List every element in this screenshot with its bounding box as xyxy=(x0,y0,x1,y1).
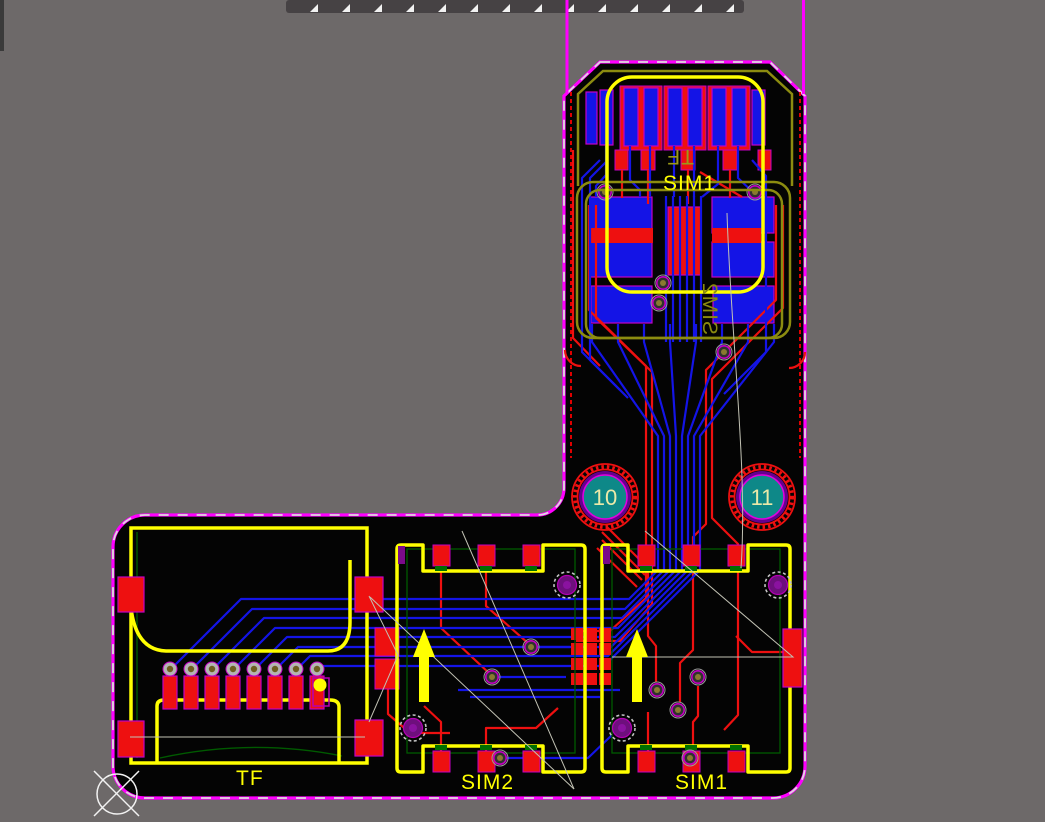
via-hole xyxy=(656,300,662,306)
sim-slot-bridge[interactable] xyxy=(712,228,761,243)
pcb-canvas[interactable]: 10 11 SIM1 TF SIM2 TF SIM2 SIM1 xyxy=(0,0,1045,822)
edge-mount-pad[interactable] xyxy=(783,629,802,687)
tf-via-hole xyxy=(314,666,320,672)
via-hole xyxy=(687,755,693,761)
screen-edge-strip xyxy=(0,0,4,51)
stitch-pad[interactable] xyxy=(571,628,583,640)
socket-paste-top xyxy=(480,566,492,571)
label-sim2[interactable]: SIM2 xyxy=(461,771,514,794)
connector-pad-bottom[interactable] xyxy=(668,88,682,146)
sim-slot-pad[interactable] xyxy=(590,197,652,233)
connector-pad-bottom[interactable] xyxy=(688,88,702,146)
socket-paste-top xyxy=(640,566,652,571)
socket-pad-top[interactable] xyxy=(433,545,450,566)
stitch-pad[interactable] xyxy=(585,673,597,685)
socket-pad-bottom[interactable] xyxy=(728,751,745,772)
tf-via-hole xyxy=(293,666,299,672)
connector-pad-tooth[interactable] xyxy=(641,150,655,170)
via-hole xyxy=(489,674,495,680)
label-tf-mirrored[interactable]: TF xyxy=(666,145,694,168)
socket-paste-bottom xyxy=(480,745,492,750)
edge-mount-pad[interactable] xyxy=(355,720,383,756)
tp-via-core xyxy=(563,581,571,589)
label-sim1-top[interactable]: SIM1 xyxy=(663,172,716,195)
sim-slot-bridge[interactable] xyxy=(590,228,653,243)
connector-pad-bottom[interactable] xyxy=(624,88,638,146)
socket-pad-top[interactable] xyxy=(478,545,495,566)
tf-pad[interactable] xyxy=(184,676,198,709)
socket-paste-top xyxy=(435,566,447,571)
stitch-pad[interactable] xyxy=(585,628,597,640)
socket-pad-top[interactable] xyxy=(523,545,540,566)
connector-pad-bottom[interactable] xyxy=(712,88,726,146)
tf-pad[interactable] xyxy=(226,676,240,709)
tf-via-hole xyxy=(209,666,215,672)
tf-pad[interactable] xyxy=(205,676,219,709)
via-hole xyxy=(497,755,503,761)
stitch-pad[interactable] xyxy=(571,673,583,685)
tf-pad[interactable] xyxy=(289,676,303,709)
connector-pad-bottom[interactable] xyxy=(732,88,746,146)
socket-paste-bottom xyxy=(525,745,537,750)
tp-via-core xyxy=(409,724,417,732)
tf-via-hole xyxy=(230,666,236,672)
via-hole xyxy=(528,644,534,650)
connector-pad-bottom[interactable] xyxy=(644,88,658,146)
connector-pad-tooth[interactable] xyxy=(723,150,737,170)
edge-mount-pad[interactable] xyxy=(355,577,383,612)
tf-via-hole xyxy=(188,666,194,672)
mounting-hole-10[interactable]: 10 xyxy=(572,464,638,530)
tp-via-core xyxy=(618,724,626,732)
socket-paste-top xyxy=(525,566,537,571)
top-connector-bar xyxy=(286,0,744,13)
socket-pad-bottom[interactable] xyxy=(638,751,655,772)
via-hole xyxy=(660,280,666,286)
mounting-hole-11[interactable]: 11 xyxy=(729,464,795,530)
socket-key-mark xyxy=(603,546,610,564)
hole-11-label: 11 xyxy=(751,485,774,510)
socket-paste-bottom xyxy=(435,745,447,750)
edge-mount-pad[interactable] xyxy=(118,577,144,612)
label-tf[interactable]: TF xyxy=(236,767,264,790)
tf-pad[interactable] xyxy=(247,676,261,709)
tf-via-hole xyxy=(272,666,278,672)
socket-key-mark xyxy=(398,546,405,564)
connector-pad-tooth[interactable] xyxy=(615,150,628,170)
stitch-pad[interactable] xyxy=(571,658,583,670)
tf-pad[interactable] xyxy=(268,676,282,709)
socket-pad-bottom[interactable] xyxy=(433,751,450,772)
socket-paste-top xyxy=(730,566,742,571)
socket-paste-bottom xyxy=(640,745,652,750)
sim-slot-pad[interactable] xyxy=(590,242,652,277)
edge-mount-pad[interactable] xyxy=(118,721,144,757)
tf-pad[interactable] xyxy=(163,676,177,709)
via-hole xyxy=(721,349,727,355)
pcb-layout-svg: 10 11 SIM1 TF SIM2 TF SIM2 SIM1 xyxy=(0,0,1045,822)
tf-via-hole xyxy=(251,666,257,672)
socket-paste-bottom xyxy=(685,745,697,750)
stitch-pad[interactable] xyxy=(585,658,597,670)
stitch-pad[interactable] xyxy=(585,643,597,655)
bar-body xyxy=(286,0,744,13)
socket-paste-bottom xyxy=(730,745,742,750)
stitch-pad[interactable] xyxy=(571,643,583,655)
connector-pad-bottom[interactable] xyxy=(586,92,597,144)
via-hole xyxy=(675,707,681,713)
via-hole xyxy=(654,687,660,693)
label-sim2-mirrored[interactable]: SIM2 xyxy=(698,282,721,335)
tp-via-core xyxy=(774,581,782,589)
label-sim1[interactable]: SIM1 xyxy=(675,771,728,794)
tf-pin1-dot xyxy=(314,679,327,692)
tf-via-hole xyxy=(167,666,173,672)
hole-10-label: 10 xyxy=(593,485,617,510)
socket-pad-top[interactable] xyxy=(638,545,655,566)
socket-pad-top[interactable] xyxy=(683,545,700,566)
via-hole xyxy=(695,674,701,680)
